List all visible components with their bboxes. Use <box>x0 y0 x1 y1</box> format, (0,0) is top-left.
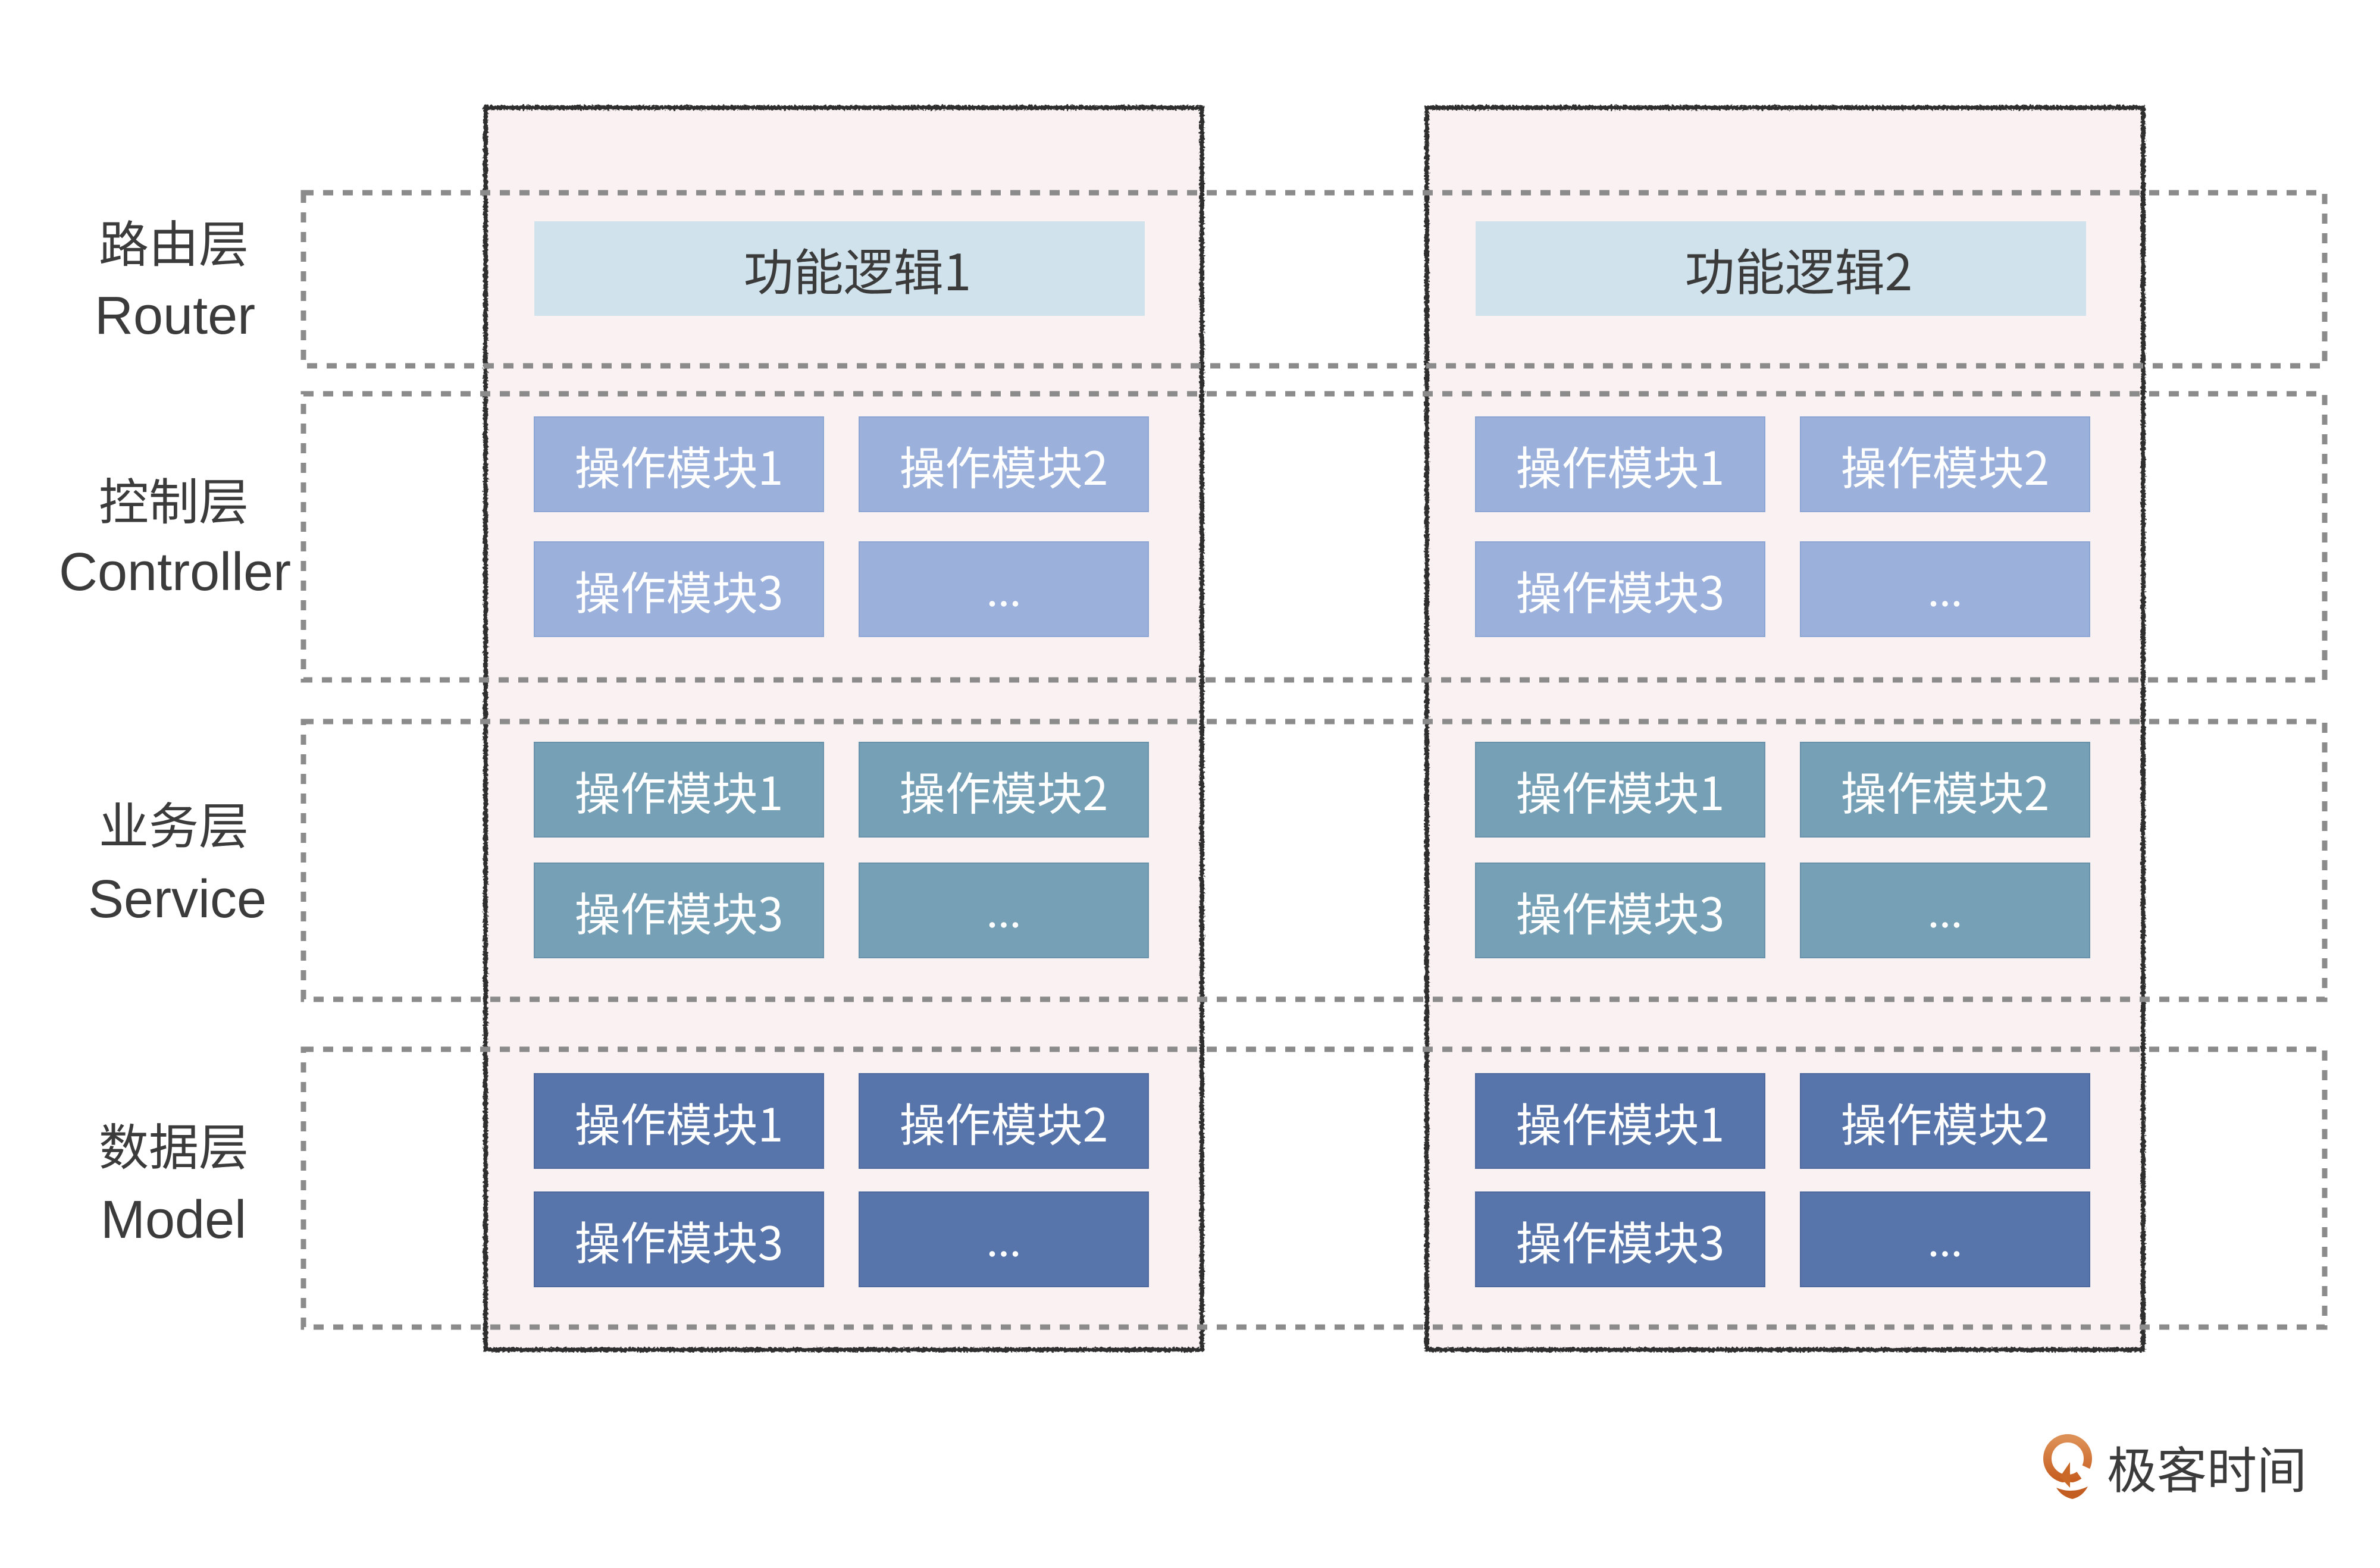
svg-text:Model: Model <box>101 1190 246 1250</box>
svg-text:Controller: Controller <box>59 542 291 602</box>
svg-text:Service: Service <box>88 870 267 929</box>
svg-text:Router: Router <box>95 286 255 346</box>
